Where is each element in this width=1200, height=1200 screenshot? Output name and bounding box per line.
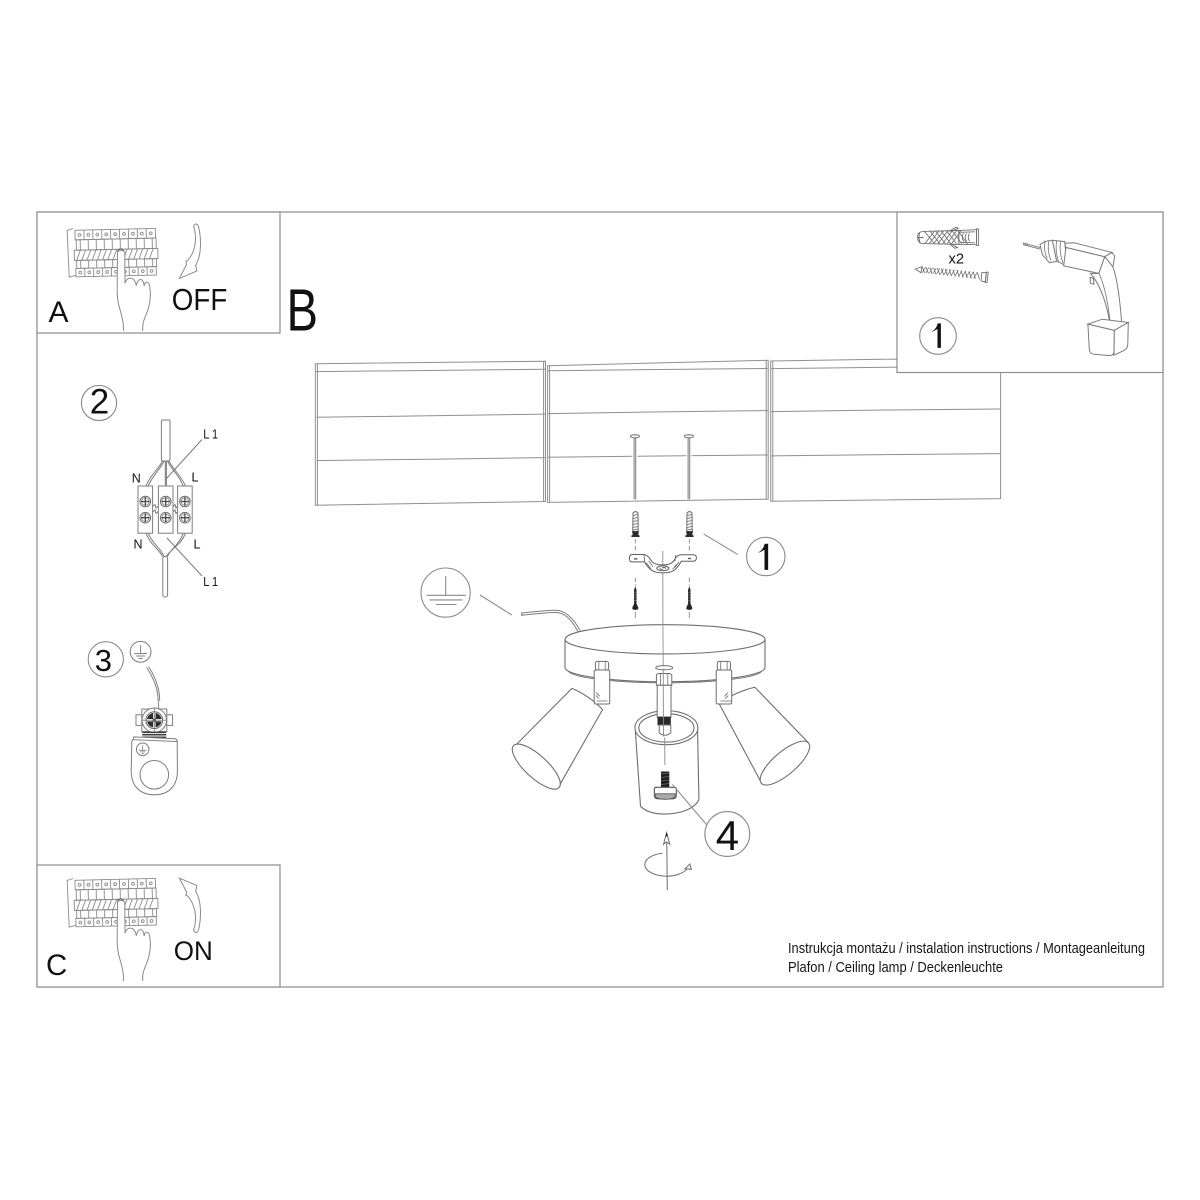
svg-text:Instrukcja montażu / instalati: Instrukcja montażu / instalation instruc…	[788, 940, 1145, 957]
svg-text:2: 2	[90, 383, 109, 422]
svg-text:ON: ON	[174, 936, 213, 966]
svg-text:N: N	[132, 471, 141, 485]
svg-text:L 1: L 1	[203, 574, 218, 589]
svg-text:OFF: OFF	[172, 283, 228, 317]
svg-text:Plafon / Ceiling lamp / Decken: Plafon / Ceiling lamp / Deckenleuchte	[788, 959, 1003, 976]
svg-text:3: 3	[95, 643, 112, 678]
svg-text:x2: x2	[949, 252, 965, 268]
svg-text:B: B	[287, 278, 319, 344]
svg-text:L: L	[194, 538, 201, 552]
svg-text:L 1: L 1	[203, 427, 218, 442]
svg-text:C: C	[46, 949, 67, 982]
svg-text:4: 4	[716, 812, 739, 859]
svg-text:N: N	[134, 538, 143, 552]
svg-text:A: A	[49, 296, 69, 329]
svg-text:L: L	[192, 471, 199, 485]
